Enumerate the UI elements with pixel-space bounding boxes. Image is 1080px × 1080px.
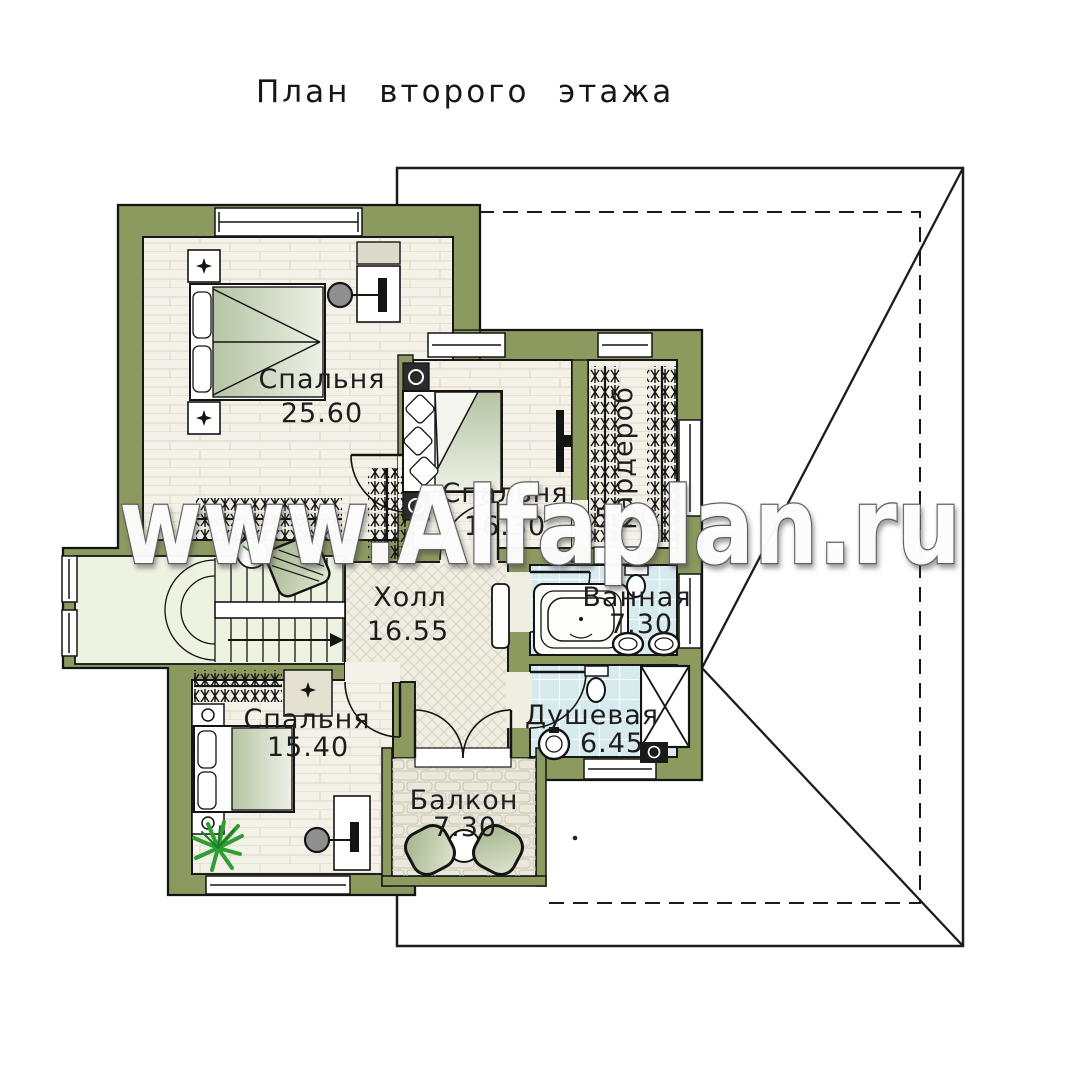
washing-machine: [640, 742, 668, 763]
window-bedroom-middle-top: [428, 333, 505, 357]
window-bedroom-master-top: [215, 208, 362, 236]
balcony-wall-left: [382, 748, 392, 886]
label-bathroom-area: 7.30: [609, 609, 673, 640]
furniture-hall: [492, 584, 509, 648]
label-bedroom-small-area: 15.40: [267, 732, 349, 763]
roof-dot-mark: [573, 836, 578, 841]
doorway-bedroom-small: [345, 662, 400, 682]
computer-icon: [378, 278, 387, 312]
label-bedroom-master-area: 25.60: [281, 398, 363, 429]
label-shower-area: 6.45: [580, 728, 644, 759]
watermark-text: www.Alfaplan.ru: [119, 465, 961, 588]
balcony-wall-bottom: [382, 876, 546, 886]
label-shower-name: Душевая: [525, 700, 659, 731]
window-stair-bay-upper: [62, 556, 77, 602]
pillow: [193, 292, 211, 338]
desk-chair: [305, 828, 329, 852]
pillow: [198, 772, 216, 809]
nightstand-lamp: [403, 363, 429, 391]
console-cabinet: [492, 584, 509, 648]
nightstand: [192, 704, 224, 726]
label-balcony-area: 7.30: [433, 812, 497, 843]
floor-plan-canvas: Спальня 25.60 Спальня 16.30 Гардероб 5.2…: [0, 0, 1080, 1080]
window-bedroom-small-bottom: [206, 876, 350, 894]
label-bedroom-master-name: Спальня: [258, 364, 385, 395]
sink-shower-room: [539, 727, 569, 759]
toilet-shower: [585, 666, 608, 702]
window-wardrobe-top: [598, 333, 652, 357]
stair-landing: [215, 602, 345, 618]
tv-icon: [556, 410, 564, 472]
pillow: [193, 346, 211, 392]
label-bedroom-small-name: Спальня: [243, 704, 370, 735]
desk-shelf: [357, 242, 400, 264]
window-stair-bay-lower: [62, 610, 77, 656]
floor-plan-drawing: Спальня 25.60 Спальня 16.30 Гардероб 5.2…: [0, 0, 1080, 1080]
pillow: [198, 731, 216, 768]
desk-chair: [328, 283, 352, 307]
computer-icon: [350, 822, 359, 852]
page-title: План второго этажа: [256, 74, 674, 110]
label-hall-area: 16.55: [367, 616, 449, 647]
balcony-wall-right: [536, 748, 546, 886]
